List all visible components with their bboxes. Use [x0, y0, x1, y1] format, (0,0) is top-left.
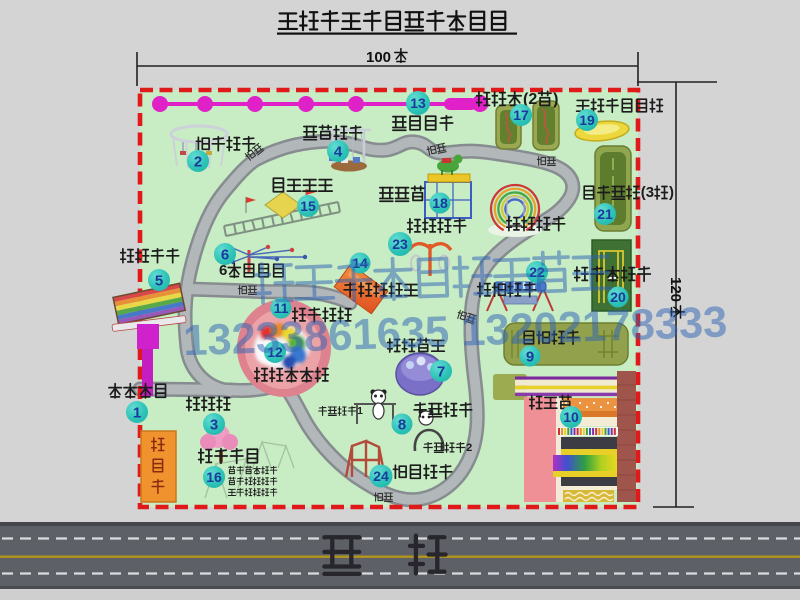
svg-text:19: 19 [579, 112, 595, 128]
svg-text:1: 1 [357, 406, 363, 417]
svg-text:120: 120 [667, 277, 684, 302]
svg-text:100: 100 [366, 49, 391, 66]
svg-text:2: 2 [194, 153, 202, 170]
svg-text:16: 16 [206, 469, 222, 485]
svg-text:): ) [553, 91, 558, 108]
svg-text:4: 4 [334, 143, 343, 160]
svg-text:7: 7 [437, 363, 445, 380]
svg-text:18: 18 [432, 195, 448, 211]
svg-text:2: 2 [466, 442, 472, 454]
svg-text:24: 24 [373, 468, 389, 484]
svg-text:13: 13 [410, 95, 426, 111]
svg-text:): ) [669, 184, 674, 201]
svg-text:10: 10 [563, 409, 579, 425]
svg-text:(3: (3 [641, 184, 654, 201]
svg-text:6: 6 [221, 246, 229, 263]
svg-text:21: 21 [597, 206, 613, 222]
svg-text:3: 3 [210, 416, 218, 433]
svg-text:23: 23 [392, 236, 408, 252]
svg-text:1: 1 [133, 404, 141, 421]
svg-text:15: 15 [300, 198, 316, 214]
svg-text:8: 8 [398, 416, 406, 433]
svg-text:17: 17 [513, 107, 529, 123]
svg-text:5: 5 [155, 272, 163, 289]
